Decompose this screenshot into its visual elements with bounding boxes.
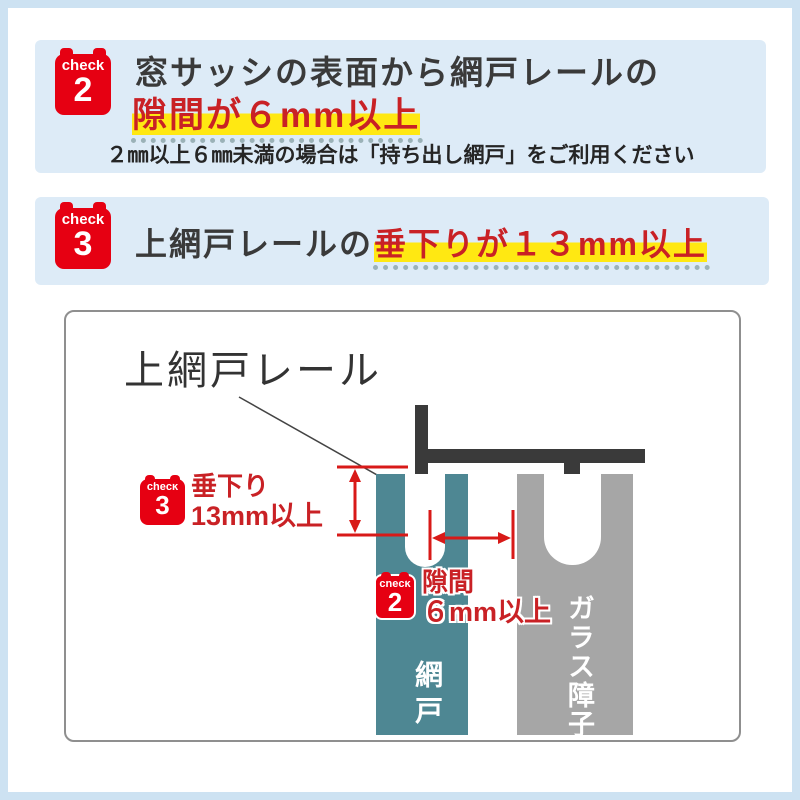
sag-callout-text: 垂下り 13mm以上 xyxy=(191,472,323,531)
gap-label: 隙間 xyxy=(422,568,551,597)
check3-section: check 3 上網戸レールの垂下りが１３mm以上 xyxy=(35,197,769,285)
check3-calendar-badge-icon: check 3 xyxy=(55,208,111,269)
check3-heading-plain: 上網戸レールの xyxy=(135,226,373,262)
check2-heading-line2: 隙間が６mm以上 xyxy=(131,87,423,138)
gap-value: ６mm以上 xyxy=(422,597,551,627)
gap-callout-badge-icon: check 2 xyxy=(374,574,416,620)
badge-number: 2 xyxy=(74,74,93,106)
screen-door-label: 網戸 xyxy=(407,660,447,732)
sag-value: 13mm以上 xyxy=(191,501,323,531)
sag-callout-badge-icon: check 3 xyxy=(140,479,185,525)
badge-number: 2 xyxy=(388,591,402,614)
sag-label: 垂下り xyxy=(191,472,323,501)
upper-rail-label: 上網戸レール xyxy=(124,338,382,396)
check2-section: check 2 窓サッシの表面から網戸レールの 隙間が６mm以上 ２㎜以上６㎜未… xyxy=(35,40,766,173)
check3-heading: 上網戸レールの垂下りが１３mm以上 xyxy=(135,219,710,265)
sash-horizontal-rail xyxy=(428,449,645,463)
badge-number: 3 xyxy=(155,494,169,517)
glass-shoji-label: ガラス障子 xyxy=(560,594,599,739)
gap-callout-text: 隙間 ６mm以上 xyxy=(422,568,551,627)
check2-highlighted-text: 隙間が６mm以上 xyxy=(131,96,423,143)
check2-calendar-badge-icon: check 2 xyxy=(55,54,111,115)
rail-cross-section-diagram: 上網戸レール xyxy=(64,310,741,742)
screen-door-slot xyxy=(405,474,445,567)
page-canvas: check 2 窓サッシの表面から網戸レールの 隙間が６mm以上 ２㎜以上６㎜未… xyxy=(0,0,800,800)
glass-shoji-slot xyxy=(544,474,601,565)
check2-note: ２㎜以上６㎜未満の場合は「持ち出し網戸」をご利用ください xyxy=(35,139,766,169)
badge-number: 3 xyxy=(74,228,93,260)
check3-highlighted-text: 垂下りが１３mm以上 xyxy=(373,226,710,270)
